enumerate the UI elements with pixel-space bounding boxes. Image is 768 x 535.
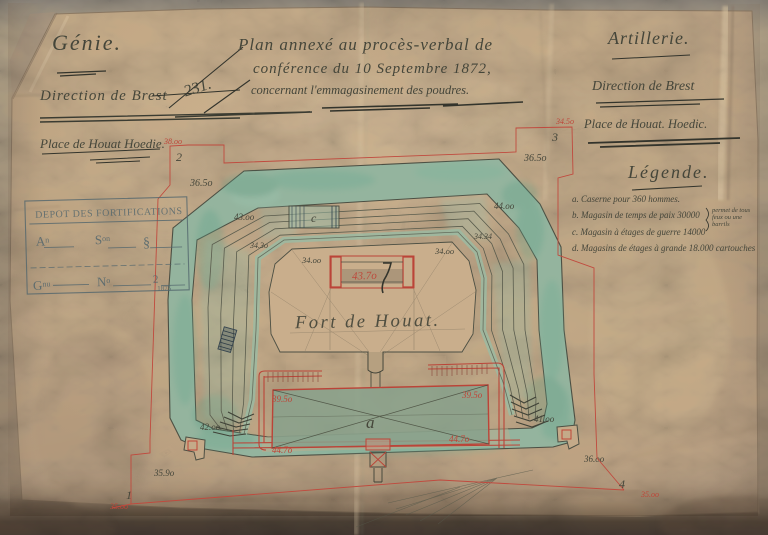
svg-text:42.oo: 42.oo xyxy=(200,422,221,432)
svg-text:3: 3 xyxy=(551,130,558,144)
svg-text:34.34: 34.34 xyxy=(473,232,492,241)
svg-text:conférence du 10 Septembre 187: conférence du 10 Septembre 1872, xyxy=(253,61,492,77)
svg-text:b. Magasin de temps de paix 30: b. Magasin de temps de paix 30000 xyxy=(572,210,700,220)
svg-text:34.5o: 34.5o xyxy=(555,117,574,126)
svg-text:Direction de Brest: Direction de Brest xyxy=(591,79,695,94)
svg-text:Place de Houat Hoedie.: Place de Houat Hoedie. xyxy=(39,136,165,151)
svg-text:35.9o: 35.9o xyxy=(153,468,175,478)
svg-text:34.oo: 34.oo xyxy=(301,255,321,265)
svg-text:concernant l'emmagasinement de: concernant l'emmagasinement des poudres. xyxy=(251,83,469,97)
svg-text:§: § xyxy=(143,236,150,251)
svg-text:c: c xyxy=(311,211,317,225)
svg-text:feux ou une: feux ou une xyxy=(712,214,742,221)
svg-text:barrils: barrils xyxy=(712,221,730,228)
svg-text:43.7o: 43.7o xyxy=(352,270,378,283)
svg-text:Artillerie.: Artillerie. xyxy=(607,28,690,48)
svg-text:a: a xyxy=(366,413,375,432)
svg-text:36.5o: 36.5o xyxy=(523,153,547,164)
svg-text:34.oo: 34.oo xyxy=(434,246,454,256)
svg-text:35.oo: 35.oo xyxy=(109,502,128,511)
svg-text:1875: 1875 xyxy=(157,284,172,292)
svg-text:a. Caserne pour 360 hommes.: a. Caserne pour 360 hommes. xyxy=(572,194,680,204)
svg-text:34.3o: 34.3o xyxy=(249,241,268,250)
svg-text:1: 1 xyxy=(126,488,132,502)
svg-text:44.7o: 44.7o xyxy=(272,445,293,455)
svg-text:Direction de Brest: Direction de Brest xyxy=(39,88,168,104)
svg-text:Plan annexé au procès-verbal d: Plan annexé au procès-verbal de xyxy=(237,35,493,54)
svg-text:43.oo: 43.oo xyxy=(234,212,255,222)
svg-text:Fort de Houat.: Fort de Houat. xyxy=(294,311,441,334)
svg-text:44.7o: 44.7o xyxy=(449,434,470,444)
svg-text:Légende.: Légende. xyxy=(627,162,709,182)
svg-text:38.oo: 38.oo xyxy=(163,137,182,146)
svg-text:36.oo: 36.oo xyxy=(583,454,605,464)
svg-text:c. Magasin à étages de guerre: c. Magasin à étages de guerre 14000 xyxy=(572,227,706,237)
svg-text:d. Magasins de étages à grande: d. Magasins de étages à grande 18.000 ca… xyxy=(572,243,756,253)
svg-text:44.oo: 44.oo xyxy=(494,201,515,211)
svg-text:permet de tous: permet de tous xyxy=(711,207,751,214)
svg-text:2: 2 xyxy=(176,150,182,164)
svg-text:39.5o: 39.5o xyxy=(461,390,483,400)
svg-text:36.5o: 36.5o xyxy=(189,178,213,189)
svg-text:Génie.: Génie. xyxy=(52,30,122,55)
svg-text:35.oo: 35.oo xyxy=(640,490,659,499)
svg-text:4: 4 xyxy=(619,477,625,491)
svg-text:39.5o: 39.5o xyxy=(271,394,293,404)
svg-text:Place de Houat. Hoedic.: Place de Houat. Hoedic. xyxy=(583,117,707,131)
svg-text:41.oo: 41.oo xyxy=(534,414,555,424)
